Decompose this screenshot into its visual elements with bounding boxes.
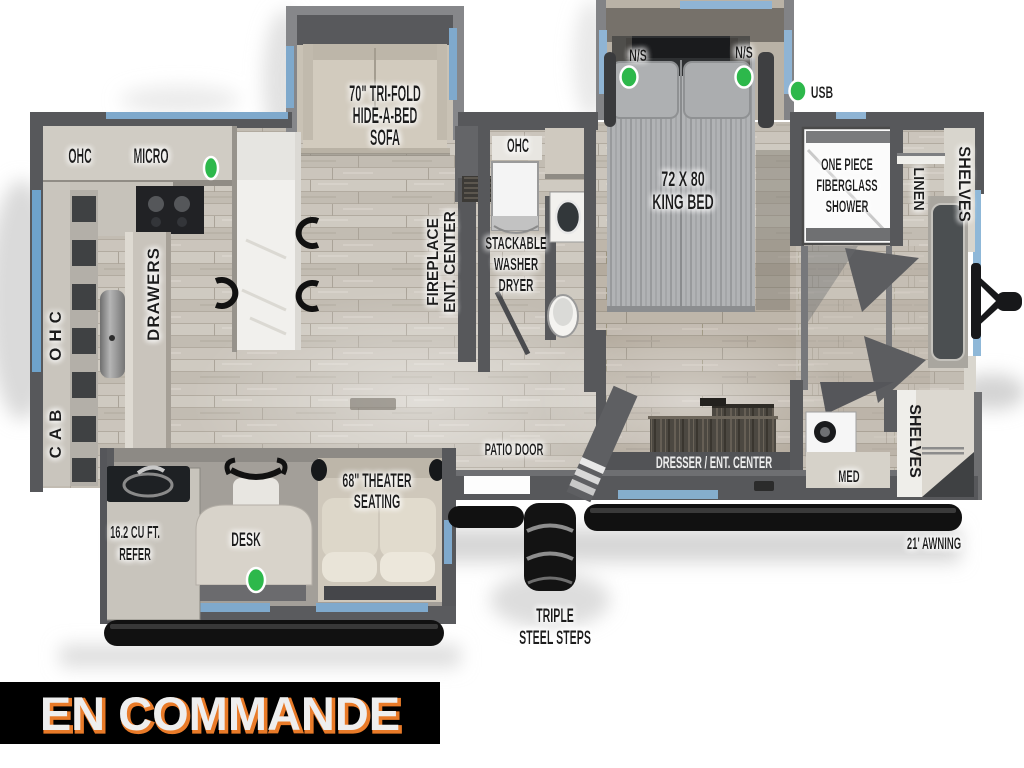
svg-text:DRESSER / ENT. CENTER: DRESSER / ENT. CENTER: [656, 453, 772, 472]
svg-text:TRIPLE: TRIPLE: [536, 606, 574, 627]
svg-text:ONE PIECE: ONE PIECE: [821, 155, 873, 174]
svg-text:DESK: DESK: [231, 530, 261, 551]
svg-text:WASHER: WASHER: [494, 255, 539, 275]
svg-text:USB: USB: [811, 82, 833, 101]
svg-text:SEATING: SEATING: [354, 492, 400, 513]
svg-text:STACKABLE: STACKABLE: [485, 234, 547, 254]
svg-text:DRAWERS: DRAWERS: [144, 247, 163, 341]
svg-text:EN COMMANDE: EN COMMANDE: [40, 687, 400, 740]
svg-text:SHELVES: SHELVES: [906, 404, 923, 478]
svg-text:OHC: OHC: [507, 136, 529, 157]
svg-text:N/S: N/S: [735, 42, 753, 61]
svg-text:DRYER: DRYER: [499, 276, 534, 296]
svg-text:SOFA: SOFA: [370, 125, 400, 150]
svg-text:STEEL STEPS: STEEL STEPS: [519, 628, 591, 649]
svg-text:MED: MED: [838, 467, 859, 486]
svg-text:21' AWNING: 21' AWNING: [907, 534, 961, 553]
svg-text:REFER: REFER: [119, 545, 151, 565]
svg-text:LINEN: LINEN: [910, 167, 926, 211]
svg-text:KING BED: KING BED: [652, 190, 714, 214]
svg-text:FIBERGLASS: FIBERGLASS: [816, 176, 877, 195]
svg-text:PATIO DOOR: PATIO DOOR: [485, 440, 544, 459]
svg-text:72 X 80: 72 X 80: [661, 167, 704, 191]
svg-text:MICRO: MICRO: [134, 144, 169, 168]
svg-text:68" THEATER: 68" THEATER: [342, 471, 411, 492]
svg-text:ENT. CENTER: ENT. CENTER: [442, 211, 459, 313]
svg-text:OHC: OHC: [68, 144, 91, 168]
svg-text:OHC: OHC: [46, 305, 65, 361]
svg-text:SHOWER: SHOWER: [826, 197, 869, 216]
svg-text:N/S: N/S: [629, 45, 647, 64]
svg-text:CAB: CAB: [46, 404, 65, 459]
svg-text:SHELVES: SHELVES: [955, 146, 973, 222]
svg-text:16.2 CU FT.: 16.2 CU FT.: [110, 523, 160, 543]
svg-text:FIREPLACE: FIREPLACE: [425, 218, 442, 306]
